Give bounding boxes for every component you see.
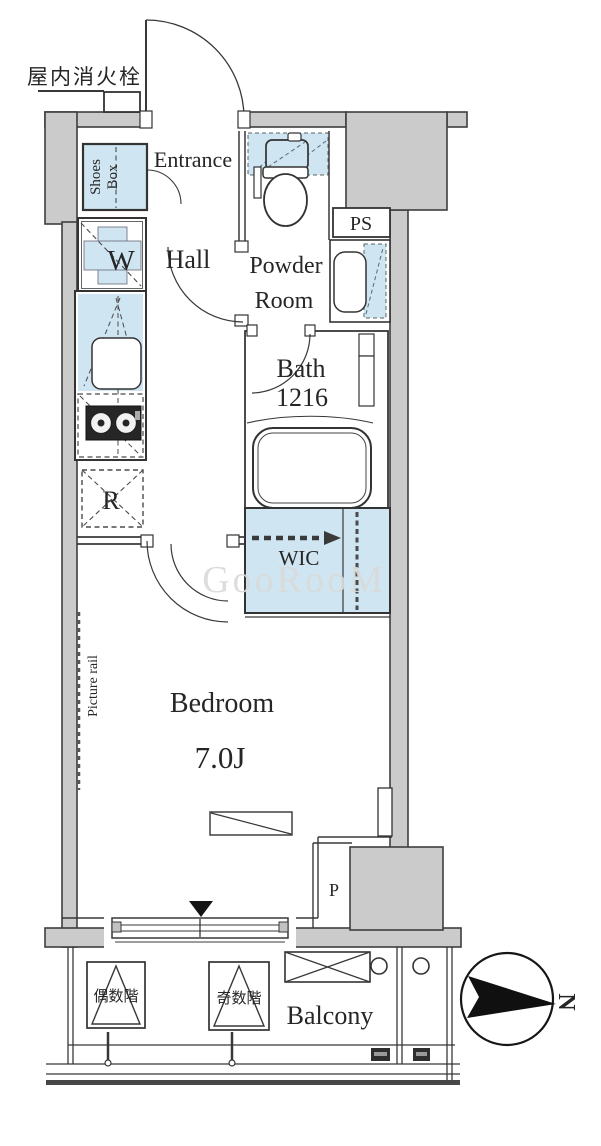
label-fire-hydrant: 屋内消火栓 [27, 65, 142, 89]
shoes-box-line1: Shoes [88, 159, 104, 195]
entrance-door-icon [140, 20, 250, 204]
drain-circle-icon [413, 958, 429, 974]
label-fridge: R [102, 486, 120, 515]
label-balcony: Balcony [287, 1001, 374, 1030]
label-powder-line2: Room [255, 288, 314, 314]
floorplan-canvas: 屋内消火栓 Entrance Shoes Box W [0, 0, 601, 1146]
kitchen-icon [75, 291, 146, 460]
label-hatch-even: 偶数階 [93, 988, 138, 1005]
balcony [46, 947, 460, 1085]
fire-hydrant-icon [38, 91, 140, 112]
label-pipe-space: P [329, 880, 339, 900]
stove-icon [86, 406, 141, 440]
label-hatch-odd: 奇数階 [216, 990, 261, 1007]
wall-niche [378, 788, 392, 836]
toilet-icon [248, 133, 328, 226]
label-ps: PS [350, 213, 372, 235]
label-powder-line1: Powder [249, 253, 322, 279]
shoes-box-line2: Box [105, 164, 121, 190]
label-bath: Bath [276, 354, 325, 383]
label-hall: Hall [166, 245, 211, 274]
equipment-box-icon [285, 952, 370, 982]
compass-north-label: N [553, 993, 579, 1011]
floorplan-svg: 屋内消火栓 Entrance Shoes Box W [0, 0, 601, 1146]
bathtub-icon [253, 428, 371, 515]
label-picture-rail: Picture rail [86, 655, 101, 717]
label-washer: W [107, 245, 135, 277]
label-bedroom-size: 7.0J [195, 740, 246, 775]
kitchen-sink-icon [92, 338, 141, 389]
label-bath-size: 1216 [276, 383, 328, 412]
pillar-bottom-right [350, 847, 443, 930]
drain-circle-icon [371, 958, 387, 974]
pillar-top-right [346, 112, 447, 210]
balcony-railing [46, 1032, 460, 1083]
watermark-text: GooRooM [202, 559, 386, 601]
compass-icon: N [461, 953, 579, 1045]
label-entrance: Entrance [154, 147, 232, 172]
counter-icon [210, 812, 292, 835]
label-bedroom: Bedroom [170, 688, 274, 719]
washbasin-icon [330, 240, 390, 322]
